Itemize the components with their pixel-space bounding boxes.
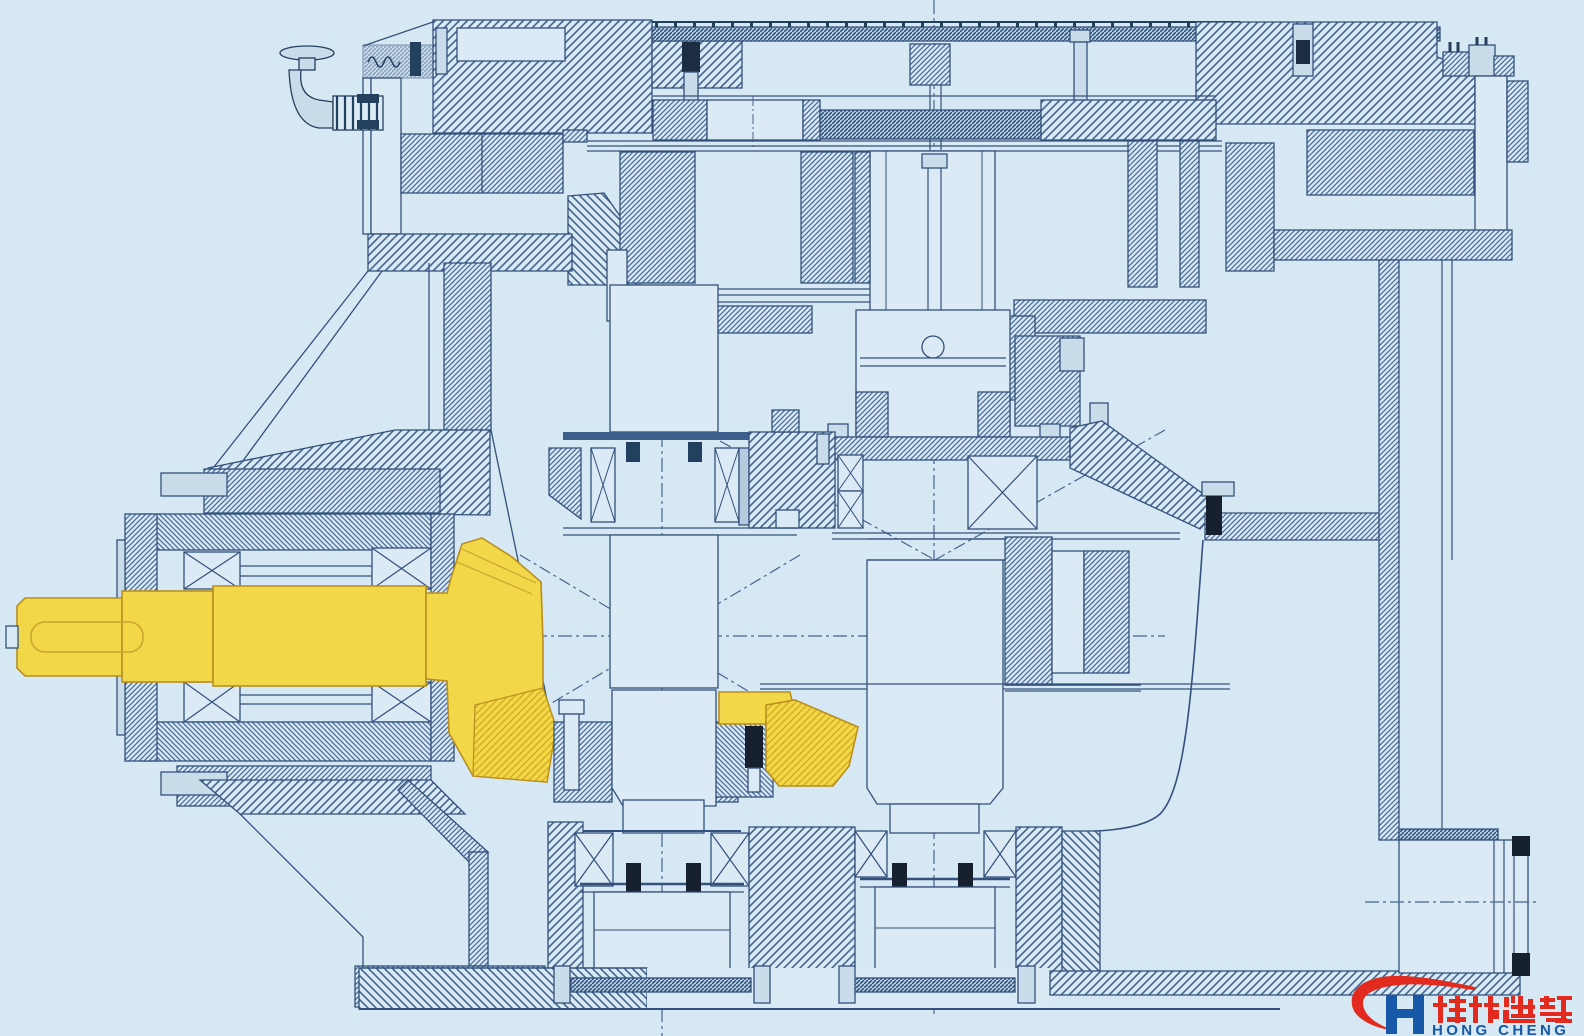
svg-text:HONG CHENG: HONG CHENG bbox=[1432, 1022, 1569, 1036]
